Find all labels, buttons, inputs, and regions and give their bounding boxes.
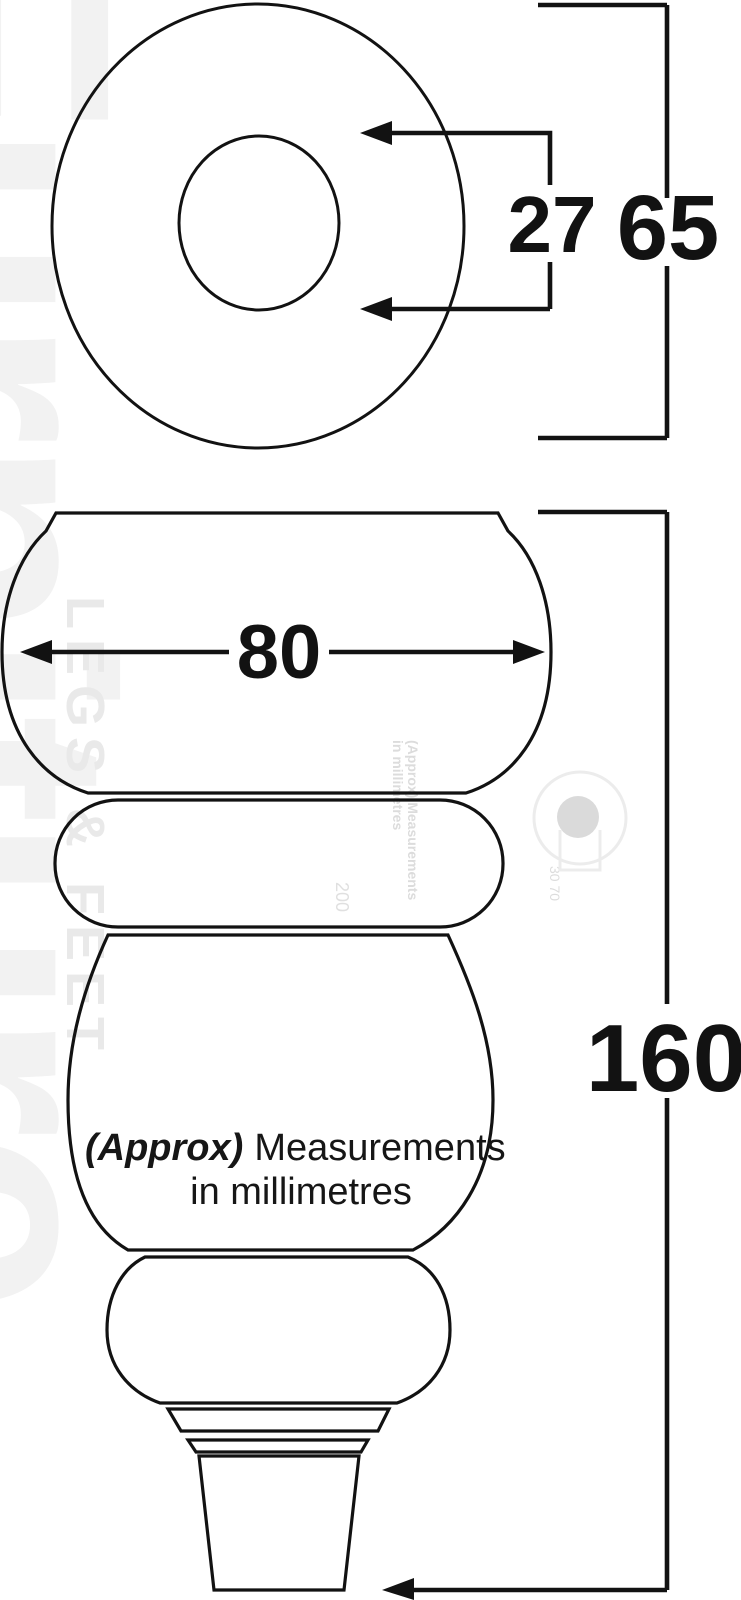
dim-80-arrow-right bbox=[513, 640, 545, 664]
dim-160-label: 160 bbox=[586, 1005, 741, 1112]
dim-80-arrow-left bbox=[20, 640, 52, 664]
note-measurements: Measurements bbox=[254, 1127, 505, 1169]
leg-foot bbox=[199, 1456, 359, 1590]
dimension-diagram-page: Furniture LEGS & FEET (Approx) Measureme… bbox=[0, 0, 741, 1600]
note-line1: (Approx)Measurements bbox=[85, 1127, 506, 1169]
note-approx: (Approx) bbox=[85, 1127, 243, 1169]
dim-80-label: 80 bbox=[237, 610, 322, 695]
dim-65-label: 65 bbox=[617, 177, 719, 279]
dim-27-arrow-bottom bbox=[360, 297, 392, 321]
dim-27-label: 27 bbox=[508, 180, 597, 269]
outer-circle bbox=[52, 4, 464, 448]
dim-27-arrow-top bbox=[360, 121, 392, 145]
side-view: 80 160 (Approx)Measurements in millimetr… bbox=[2, 512, 741, 1600]
leg-collar-band-lower bbox=[188, 1440, 368, 1452]
measurement-note: (Approx)Measurements in millimetres bbox=[85, 1127, 506, 1213]
dim-80: 80 bbox=[20, 610, 545, 695]
leg-collar-band-upper bbox=[168, 1409, 389, 1431]
inner-circle bbox=[179, 136, 339, 310]
dim-160: 160 bbox=[382, 512, 741, 1600]
leg-ring-collar bbox=[55, 800, 503, 927]
furniture-leg-technical-drawing: 27 65 bbox=[0, 0, 741, 1600]
top-view: 27 65 bbox=[52, 4, 719, 448]
note-line2: in millimetres bbox=[190, 1171, 412, 1213]
dim-160-arrow-bottom bbox=[382, 1578, 414, 1600]
dim-27: 27 bbox=[360, 121, 596, 321]
leg-lower-ball bbox=[107, 1257, 450, 1403]
